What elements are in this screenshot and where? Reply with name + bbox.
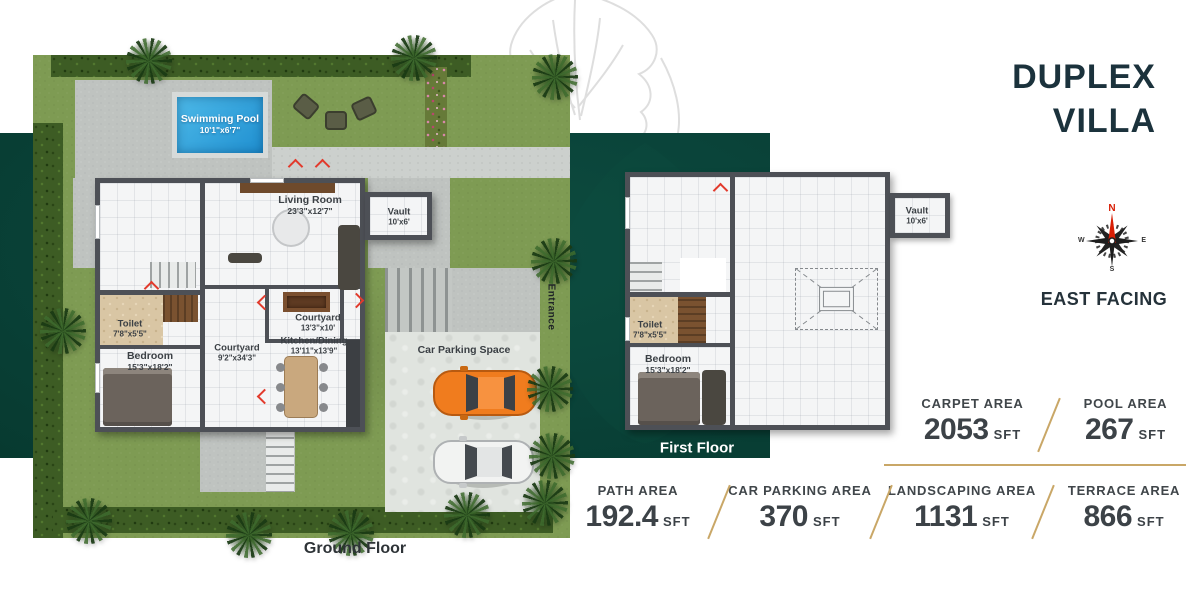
compass-w: W	[1078, 237, 1085, 244]
palm-tree-icon	[531, 238, 577, 284]
stat-unit: SFT	[994, 427, 1022, 442]
vault-annex-ground	[365, 192, 432, 240]
tv-console	[240, 183, 335, 193]
deck-chair	[325, 111, 347, 130]
palm-tree-icon	[226, 512, 272, 558]
compass-e: E	[1141, 237, 1146, 244]
stair-landing	[680, 258, 726, 292]
compass-icon: N E S W	[1078, 203, 1146, 273]
stat-landscaping-area: LANDSCAPING AREA 1131 SFT	[888, 483, 1036, 541]
chair	[319, 383, 328, 392]
void-cutout	[795, 268, 878, 330]
wall	[205, 285, 360, 289]
stat-carpet-area: CARPET AREA 2053 SFT	[903, 396, 1042, 454]
palm-tree-icon	[522, 480, 568, 526]
stat-value: 866	[1083, 500, 1132, 534]
palm-tree-icon	[532, 54, 578, 100]
window	[95, 205, 100, 239]
title-line-2: VILLA	[958, 100, 1156, 144]
stats-primary-row: CARPET AREA 2053 SFT POOL AREA 267 SFT	[903, 396, 1195, 454]
gold-rule	[884, 464, 1186, 466]
toilet-floor	[630, 297, 678, 343]
first-floor-plan	[625, 172, 890, 430]
stat-label: PATH AREA	[598, 483, 679, 498]
stat-label: TERRACE AREA	[1068, 483, 1180, 498]
outdoor-stairs	[266, 428, 294, 492]
stat-value: 1131	[914, 500, 977, 534]
closet	[678, 297, 706, 343]
wall	[630, 343, 730, 347]
car-orange	[432, 365, 538, 423]
ground-floor-house	[95, 178, 365, 432]
stat-unit: SFT	[813, 514, 841, 529]
wall	[200, 183, 205, 427]
chair	[319, 363, 328, 372]
palm-tree-icon	[529, 433, 575, 479]
chair	[319, 403, 328, 412]
stat-unit: SFT	[663, 514, 691, 529]
palm-tree-icon	[126, 38, 172, 84]
bench	[228, 253, 262, 263]
floor-plan-poster: Swimming Pool 10'1"x6'7" Living Room 23'…	[0, 0, 1200, 600]
stat-terrace-area: TERRACE AREA 866 SFT	[1050, 483, 1198, 541]
stat-value: 267	[1085, 413, 1134, 447]
facing-label: EAST FACING	[1014, 289, 1194, 310]
stat-value: 192.4	[585, 500, 658, 534]
stat-label: LANDSCAPING AREA	[888, 483, 1036, 498]
palm-tree-icon	[444, 492, 490, 538]
stat-value: 2053	[924, 413, 989, 447]
stat-unit: SFT	[1139, 427, 1167, 442]
palm-tree-icon	[328, 510, 374, 556]
chair	[276, 403, 285, 412]
sofa	[338, 225, 360, 290]
window	[95, 363, 100, 393]
entry-path	[272, 147, 570, 178]
stairs	[630, 262, 662, 292]
chair	[276, 383, 285, 392]
page-title: DUPLEX VILLA	[958, 56, 1156, 143]
stat-car-parking-area: CAR PARKING AREA 370 SFT	[726, 483, 874, 541]
window	[625, 317, 630, 341]
vault-annex-first	[890, 193, 950, 238]
closet	[163, 295, 198, 322]
wall	[100, 345, 205, 349]
indoor-stairs	[150, 262, 196, 288]
palm-tree-icon	[391, 35, 437, 81]
wall	[265, 285, 269, 343]
car-white	[432, 435, 535, 491]
wardrobe	[702, 370, 726, 425]
dining-table	[284, 356, 318, 418]
courtyard-planter	[283, 292, 330, 312]
stat-value: 370	[759, 500, 808, 534]
ground-floor-garden	[33, 55, 570, 538]
coffee-table	[272, 209, 310, 247]
palm-tree-icon	[66, 498, 112, 544]
bed	[103, 368, 172, 426]
palm-tree-icon	[40, 308, 86, 354]
bed	[638, 372, 700, 425]
driveway-ramp	[385, 268, 452, 332]
stat-label: CARPET AREA	[921, 396, 1023, 411]
palm-tree-icon	[527, 366, 573, 412]
stat-path-area: PATH AREA 192.4 SFT	[564, 483, 712, 541]
stat-pool-area: POOL AREA 267 SFT	[1056, 396, 1195, 454]
kitchen-counter	[346, 340, 360, 427]
wall	[730, 177, 735, 425]
stats-secondary-row: PATH AREA 192.4 SFT CAR PARKING AREA 370…	[564, 483, 1198, 541]
chair	[276, 363, 285, 372]
stat-label: POOL AREA	[1084, 396, 1168, 411]
deck-chair	[291, 92, 320, 121]
compass-n: N	[1108, 203, 1115, 214]
wall	[340, 285, 344, 343]
toilet-floor	[100, 295, 163, 345]
door-swing-icon	[713, 183, 729, 199]
deck-chair	[350, 95, 378, 122]
title-line-1: DUPLEX	[958, 56, 1156, 100]
stat-unit: SFT	[982, 514, 1010, 529]
stat-unit: SFT	[1137, 514, 1165, 529]
compass-s: S	[1110, 266, 1115, 273]
driveway-apron	[452, 268, 540, 332]
stat-label: CAR PARKING AREA	[728, 483, 872, 498]
window	[625, 197, 630, 229]
window	[250, 178, 284, 183]
swimming-pool	[172, 92, 268, 158]
